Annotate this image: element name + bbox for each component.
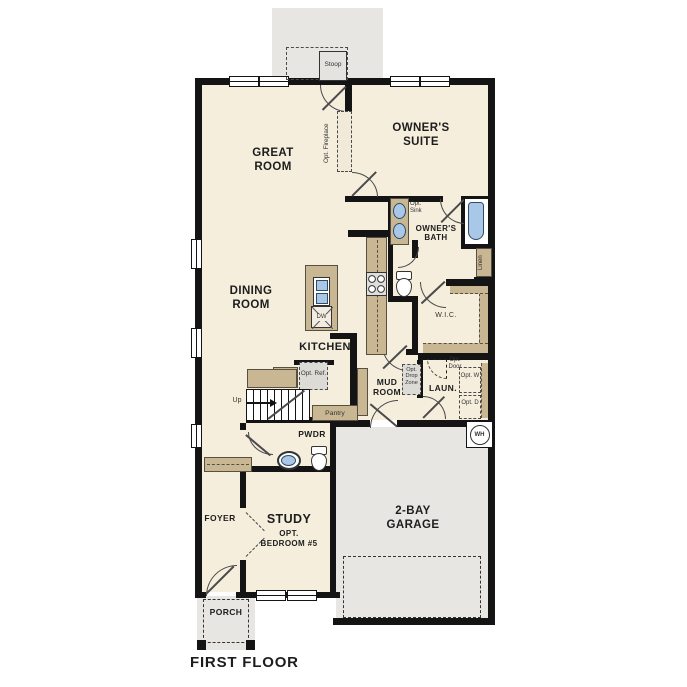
stoop-label: Stoop: [320, 61, 346, 68]
window-study-1: [256, 590, 286, 601]
linen-label: Linen: [478, 250, 485, 276]
opt-ref-label: Opt. Ref.: [300, 370, 327, 377]
study-label: STUDY: [258, 512, 320, 527]
wall-bottom-garage: [333, 618, 495, 625]
vanity-sink-2: [393, 223, 406, 239]
wall-study-right: [330, 417, 336, 592]
garage-label: 2-BAY GARAGE: [381, 505, 445, 532]
dishwasher: DW: [311, 306, 332, 328]
floor-plan: Stoop Opt. Fireplace Opt. Sink Linen: [0, 0, 687, 687]
wic-shelf-top: [450, 286, 488, 294]
opt-ref-outline: Opt. Ref.: [299, 362, 328, 390]
laundry-shelf-right: [481, 363, 488, 418]
window-great-room-1: [229, 76, 259, 87]
window-study-2: [287, 590, 317, 601]
water-heater-box: WH: [466, 421, 493, 448]
first-floor-label: FIRST FLOOR: [190, 654, 300, 672]
opt-washer-outline: Opt. W: [459, 367, 481, 393]
porch-outline: [203, 599, 249, 643]
pantry-label: Pantry: [313, 410, 357, 418]
wall-wic-left: [412, 296, 418, 353]
window-foyer: [191, 424, 202, 448]
garage-door-zone: [343, 556, 481, 618]
great-room-label: GREAT ROOM: [242, 147, 304, 174]
kitchen-label: KITCHEN: [297, 341, 353, 354]
pantry-shelf-horizontal: Pantry: [312, 405, 358, 421]
owners-bath-label: OWNER'S BATH: [407, 224, 465, 243]
kitchen-counter: [366, 237, 387, 355]
porch-post-left: [197, 640, 206, 650]
foyer-label: FOYER: [202, 513, 238, 523]
opt-sink-label: Opt. Sink: [410, 201, 430, 215]
stairs-up-arrow: [246, 402, 270, 404]
stair-half-wall: [247, 369, 297, 388]
study-opt-label: OPT.: [258, 529, 320, 538]
mud-room-label: MUD ROOM: [366, 377, 408, 397]
stairs-up-arrow-head: [270, 399, 277, 407]
dishwasher-label: DW: [312, 314, 331, 321]
wall-hall-bottom: [348, 230, 390, 237]
owners-suite-label: OWNER'S SUITE: [382, 122, 460, 149]
window-owners-suite-2: [420, 76, 450, 87]
opt-fireplace-label: Opt. Fireplace: [323, 114, 330, 172]
porch-post-right: [246, 640, 255, 650]
dining-room-label: DINING ROOM: [222, 285, 280, 312]
wall-right: [488, 78, 495, 625]
wall-wic-top: [446, 279, 488, 286]
wic-label: W.I.C.: [430, 312, 462, 320]
opt-dryer-outline: Opt. D: [459, 395, 481, 419]
tub: [464, 198, 489, 245]
window-owners-suite-1: [390, 76, 420, 87]
range-cooktop: [366, 272, 387, 296]
powder-label: PWDR: [295, 429, 329, 439]
water-heater-label: WH: [471, 432, 489, 439]
window-great-room-2: [259, 76, 289, 87]
stoop-box: Stoop: [319, 51, 347, 81]
window-left-1: [191, 239, 202, 269]
porch-label: PORCH: [204, 607, 248, 617]
study-opt2-label: BEDROOM #5: [250, 539, 328, 548]
vanity-sink-1: [393, 203, 406, 219]
powder-sink: [277, 451, 301, 470]
water-heater-circle: WH: [470, 425, 490, 445]
opt-dryer-label: Opt. D: [460, 400, 480, 407]
opt-fireplace-outline: [337, 111, 352, 172]
island-sink: [313, 277, 330, 306]
wall-foyer-right-a: [240, 423, 246, 430]
opt-washer-label: Opt. W: [460, 373, 480, 380]
tub-basin: [468, 202, 484, 240]
stairs-up-label: Up: [229, 397, 245, 405]
wic-shelf-bottom: [423, 343, 488, 353]
foyer-bench: [204, 457, 252, 472]
wall-foyer-right-c: [240, 560, 246, 592]
laundry-label: LAUN.: [427, 383, 459, 393]
window-left-2: [191, 328, 202, 358]
